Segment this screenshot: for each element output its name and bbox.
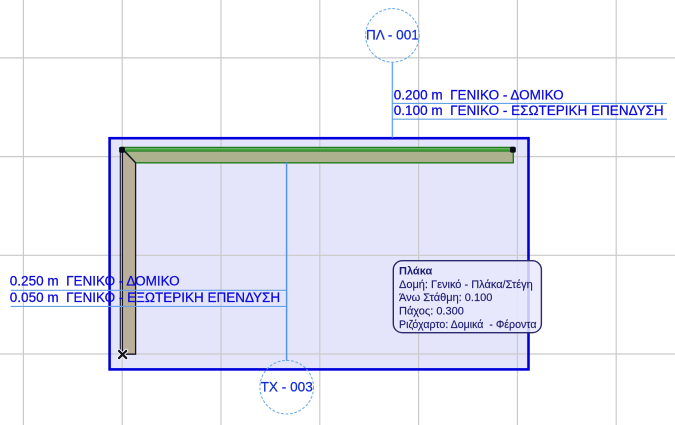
svg-text:0.250 m ΓΕΝΙΚΟ - ΔΟΜΙΚΟ: 0.250 m ΓΕΝΙΚΟ - ΔΟΜΙΚΟ: [10, 274, 180, 289]
svg-text:0.050 m ΓΕΝΙΚΟ - ΕΞΩΤΕΡΙΚΗ ΕΠ: 0.050 m ΓΕΝΙΚΟ - ΕΞΩΤΕΡΙΚΗ ΕΠΕΝΔΥΣΗ: [10, 290, 280, 305]
svg-text:Πλάκα: Πλάκα: [399, 266, 432, 278]
svg-text:0.200 m ΓΕΝΙΚΟ - ΔΟΜΙΚΟ: 0.200 m ΓΕΝΙΚΟ - ΔΟΜΙΚΟ: [394, 88, 564, 103]
svg-text:Πάχος: 0.300: Πάχος: 0.300: [399, 306, 464, 318]
svg-text:Ριζόχαρτο: Δομικά - Φέροντα: Ριζόχαρτο: Δομικά - Φέροντα: [399, 319, 537, 331]
svg-text:0.100 m ΓΕΝΙΚΟ - ΕΣΩΤΕΡΙΚΗ ΕΠ: 0.100 m ΓΕΝΙΚΟ - ΕΣΩΤΕΡΙΚΗ ΕΠΕΝΔΥΣΗ: [394, 103, 664, 118]
svg-text:Άνω Στάθμη: 0.100: Άνω Στάθμη: 0.100: [399, 292, 492, 304]
svg-text:ΠΛ - 001: ΠΛ - 001: [366, 27, 419, 42]
svg-text:Δομή: Γενικό - Πλάκα/Στέγη: Δομή: Γενικό - Πλάκα/Στέγη: [399, 279, 533, 291]
svg-text:ΤΧ - 003: ΤΧ - 003: [261, 379, 313, 394]
